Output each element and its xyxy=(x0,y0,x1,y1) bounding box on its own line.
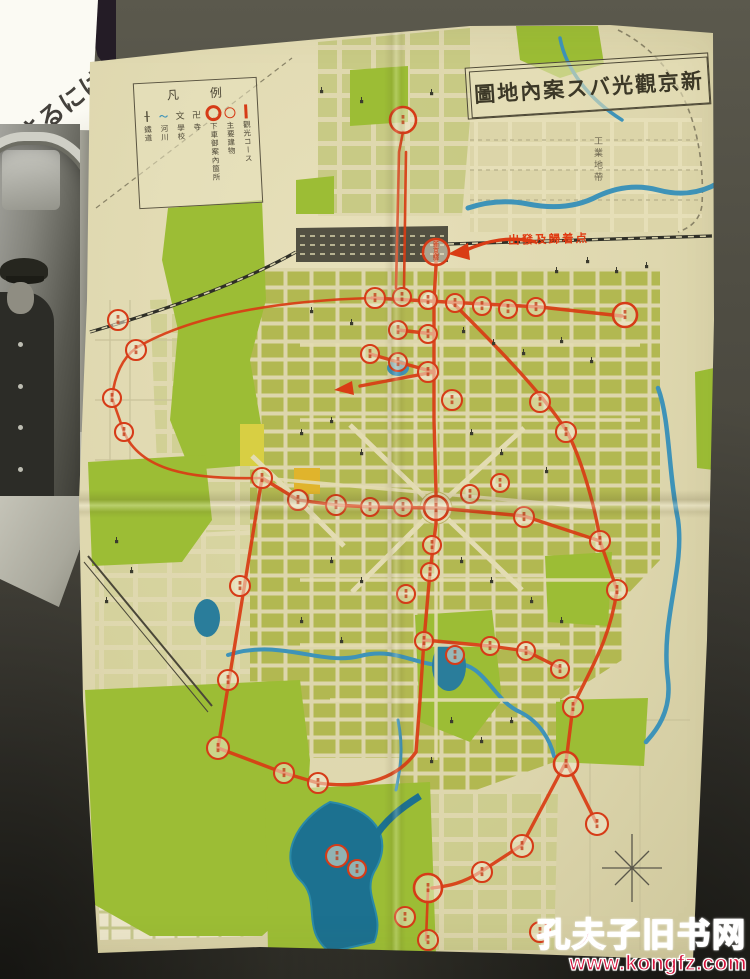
bus-stop-circle xyxy=(415,632,433,650)
legend-item: 文學校 xyxy=(173,106,191,199)
bus-stop-circle xyxy=(419,325,437,343)
bus-stop-circle xyxy=(563,697,583,717)
bus-stop-circle xyxy=(389,353,407,371)
watermark-url: www.kongfz.com xyxy=(537,953,747,975)
bus-stop-circle xyxy=(514,507,534,527)
map-drawing: 新京驛 xyxy=(0,0,750,979)
uniformed-man xyxy=(0,292,54,496)
bus-stop-circle xyxy=(218,670,238,690)
bus-stop-circle xyxy=(361,498,379,516)
bus-stop-circle xyxy=(442,390,462,410)
bus-stop-circle xyxy=(108,310,128,330)
bus-stop-circle xyxy=(348,860,366,878)
departure-label: 出發及歸着点 xyxy=(508,230,589,248)
legend-item: 觀光コース xyxy=(239,102,257,195)
bus-stop-circle xyxy=(390,107,416,133)
bus-stop-circle xyxy=(607,580,627,600)
uniform-buttons xyxy=(18,342,24,472)
bus-stop-circle xyxy=(115,423,133,441)
legend-box: 凡 例 觀光コース主要建物下車御案內箇所卍寺文學校〜河川╂鐵道 xyxy=(133,77,263,209)
bus-stop-circle xyxy=(590,531,610,551)
legend-item: 〜河川 xyxy=(157,106,175,199)
yellow-patch xyxy=(240,424,264,466)
bus-stop-circle xyxy=(491,474,509,492)
bus-stop-circle xyxy=(252,468,272,488)
bus-stop-circle xyxy=(554,752,578,776)
industrial-zone-label: 工業地帶 xyxy=(592,136,605,184)
bw-photo xyxy=(0,124,80,496)
legend-item: ╂鐵道 xyxy=(140,107,158,200)
bus-stop-circle xyxy=(472,862,492,882)
legend-title: 凡 例 xyxy=(151,82,252,104)
bus-stop-circle xyxy=(461,485,479,503)
bus-stop-circle xyxy=(274,763,294,783)
bus-stop-circle xyxy=(395,907,415,927)
bus-stop-circle xyxy=(481,637,499,655)
bus-stop-circle xyxy=(556,422,576,442)
bus-stop-circle xyxy=(207,737,229,759)
compass-star xyxy=(602,834,662,902)
bus-stop-circle xyxy=(393,288,411,306)
bus-stop-circle xyxy=(365,288,385,308)
bus-stop-circle xyxy=(421,563,439,581)
bus-stop-circle xyxy=(418,362,438,382)
photographed-map-scene: なさるには xyxy=(0,0,750,979)
bus-stop-circle xyxy=(397,585,415,603)
watermark: 孔夫子旧书网 www.kongfz.com xyxy=(537,918,747,975)
bus-stop-circle xyxy=(446,646,464,664)
bus-stop-circle xyxy=(326,495,346,515)
bus-stop-circle xyxy=(418,930,438,950)
face xyxy=(7,282,34,314)
bus-stop-label: 新京驛 xyxy=(433,240,440,262)
bus-stop-circle xyxy=(517,642,535,660)
bus-stop-circle xyxy=(424,496,448,520)
departure-arrowhead xyxy=(448,243,470,260)
bus-stop-circle xyxy=(499,300,517,318)
bus-stop-circle xyxy=(414,874,442,902)
bus-stop-circle xyxy=(394,498,412,516)
bus-stop-circle xyxy=(419,291,437,309)
bus-stop-circle xyxy=(308,773,328,793)
bus-stop-circle xyxy=(530,392,550,412)
bus-stop-circle xyxy=(126,340,146,360)
small-lake xyxy=(194,599,220,637)
legend-item: 下車御案內箇所 xyxy=(206,104,224,197)
bus-stop-circle xyxy=(389,321,407,339)
bus-stop-circle xyxy=(326,845,348,867)
bus-stop-circle xyxy=(527,298,545,316)
bus-stop-circle xyxy=(361,345,379,363)
bus-stop-circle xyxy=(446,294,464,312)
bus-stop-circle xyxy=(288,490,308,510)
legend-items: 觀光コース主要建物下車御案內箇所卍寺文學校〜河川╂鐵道 xyxy=(140,102,257,200)
bus-stop-circle xyxy=(613,303,637,327)
watermark-site-name: 孔夫子旧书网 xyxy=(537,918,747,953)
bus-stop-circle xyxy=(551,660,569,678)
map-paper: 新京驛 圖地內案スバ光觀京新 凡 例 觀光コース主要建物下車御案內箇所卍寺文學校… xyxy=(0,0,750,979)
bus-stop-circle xyxy=(586,813,608,835)
map-title: 圖地內案スバ光觀京新 xyxy=(473,65,704,109)
bus-stop-circle xyxy=(423,536,441,554)
bus-stop-circle xyxy=(230,576,250,596)
bus-stop-circle xyxy=(511,835,533,857)
bus-stop-circle xyxy=(103,389,121,407)
bus-stop-circle xyxy=(473,297,491,315)
legend-item: 主要建物 xyxy=(222,103,240,196)
